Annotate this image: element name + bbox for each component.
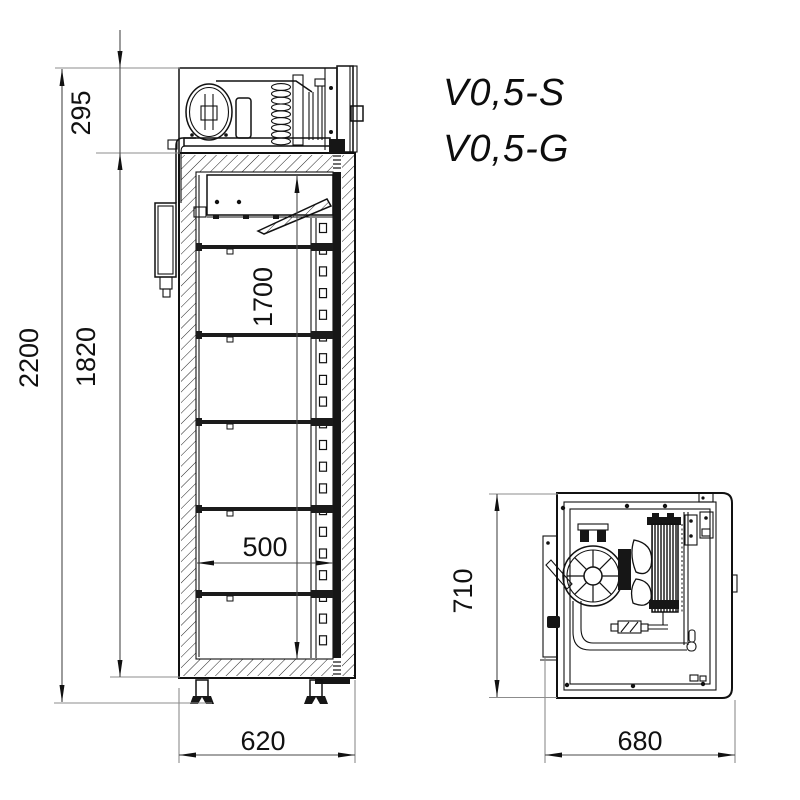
dim-label-1820: 1820 <box>71 327 101 387</box>
model-label-1: V0,5-S <box>443 72 565 114</box>
technical-drawing-sheet: 2200 295 1820 1700 500 <box>0 0 800 800</box>
door-top-pivot <box>329 139 345 153</box>
dim-label-680: 680 <box>617 726 662 756</box>
model-label-2: V0,5-G <box>443 128 569 170</box>
dim-label-710: 710 <box>448 568 478 613</box>
screw-dot <box>329 86 333 90</box>
plan-pipe-elbow <box>547 616 560 628</box>
insulation-top <box>196 155 333 172</box>
fan-motor-bracket <box>618 549 631 590</box>
insulation-left <box>181 155 196 676</box>
condenser <box>647 513 682 612</box>
dim-label-500: 500 <box>242 532 287 562</box>
dim-label-2200: 2200 <box>14 328 44 388</box>
screw-dot <box>329 130 333 134</box>
refrigerated-cabinet-drawing: 2200 295 1820 1700 500 <box>0 0 800 800</box>
dim-label-295: 295 <box>66 90 96 135</box>
insulation-bottom <box>196 659 333 676</box>
dim-label-1700: 1700 <box>248 267 278 327</box>
dim-label-620: 620 <box>240 726 285 756</box>
insulation-door <box>342 155 354 676</box>
